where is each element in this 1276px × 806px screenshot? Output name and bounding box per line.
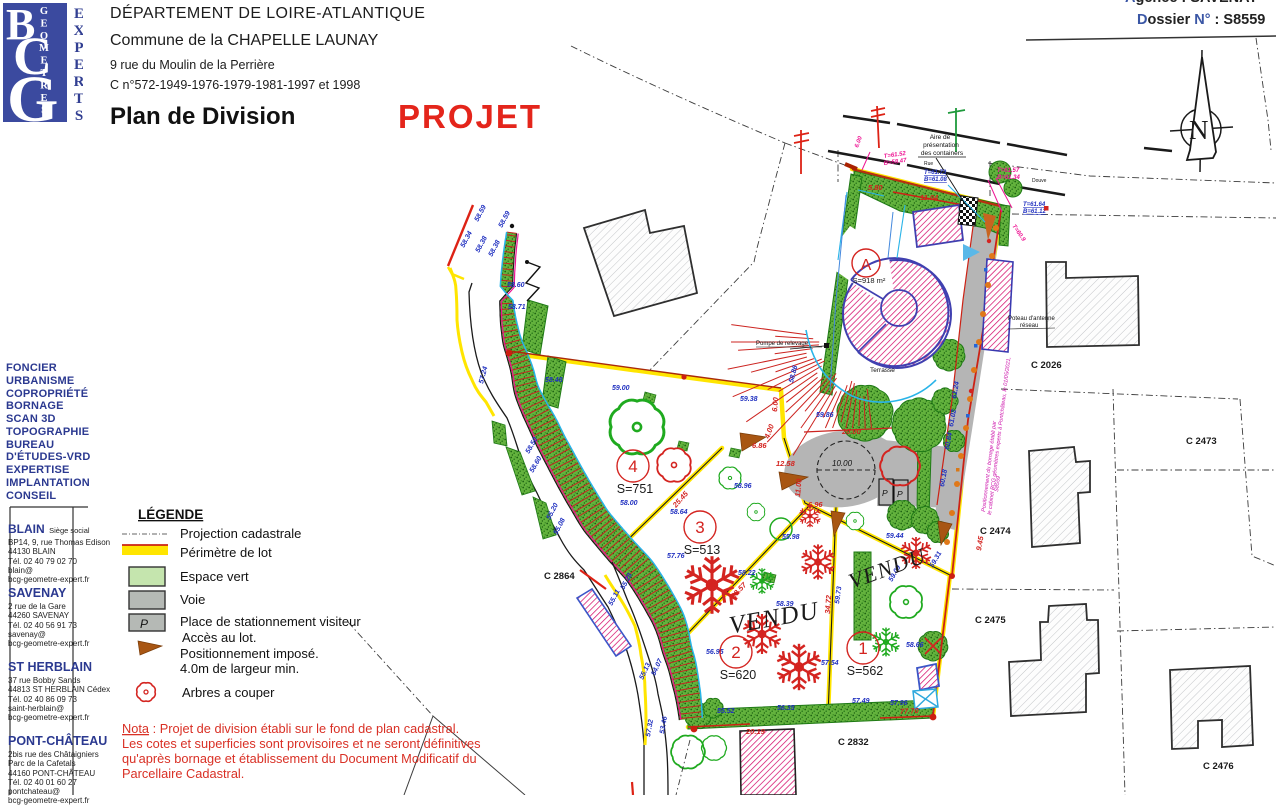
svg-text:58.22: 58.22 xyxy=(738,570,756,577)
svg-text:C 2026: C 2026 xyxy=(1031,360,1062,371)
svg-text:10.00: 10.00 xyxy=(832,459,853,468)
svg-text:A: A xyxy=(861,257,872,274)
svg-text:5.80: 5.80 xyxy=(868,183,883,192)
svg-text:Espace vert: Espace vert xyxy=(180,569,249,584)
svg-text:4.0m de largeur min.: 4.0m de largeur min. xyxy=(180,661,299,676)
svg-text:Poteau d'antenne: Poteau d'antenne xyxy=(1008,316,1056,322)
svg-text:P: P xyxy=(140,617,148,631)
svg-text:Les cotes et superficies sont: Les cotes et superficies sont provisoire… xyxy=(122,736,481,751)
svg-text:réseau: réseau xyxy=(1020,323,1038,329)
svg-text:qu'après bornage et établissem: qu'après bornage et établissement du Doc… xyxy=(122,751,477,766)
svg-text:T=61.64: T=61.64 xyxy=(1023,202,1046,208)
svg-text:présentation: présentation xyxy=(923,142,959,149)
svg-text:58.66: 58.66 xyxy=(906,642,924,649)
svg-text:56.35: 56.35 xyxy=(777,705,795,712)
svg-text:6.00: 6.00 xyxy=(770,396,780,412)
svg-text:S: S xyxy=(41,105,47,116)
svg-text:58.00: 58.00 xyxy=(620,500,638,507)
svg-text:34.72: 34.72 xyxy=(823,594,833,614)
svg-text:Terrasse: Terrasse xyxy=(870,367,895,374)
svg-text:Arbres a couper: Arbres a couper xyxy=(182,685,275,700)
svg-text:4: 4 xyxy=(628,457,637,476)
svg-text:Place de stationnement visiteu: Place de stationnement visiteur xyxy=(180,614,361,629)
svg-text:P: P xyxy=(897,489,903,499)
svg-text:Positionnement imposé.: Positionnement imposé. xyxy=(180,646,319,661)
svg-text:G: G xyxy=(7,63,58,123)
svg-text:77.70: 77.70 xyxy=(900,706,920,716)
svg-text:11.00: 11.00 xyxy=(793,477,804,497)
svg-text:B=61.12: B=61.12 xyxy=(1023,209,1047,215)
svg-text:E: E xyxy=(40,93,47,104)
svg-text:S=513: S=513 xyxy=(684,543,721,557)
svg-text:20.00: 20.00 xyxy=(841,427,862,436)
svg-text:55.52: 55.52 xyxy=(717,708,735,715)
svg-text:58.48: 58.48 xyxy=(545,377,563,384)
svg-text:Périmètre de lot: Périmètre de lot xyxy=(180,545,272,560)
svg-text:T=61.57: T=61.57 xyxy=(997,168,1020,174)
svg-text:C 2832: C 2832 xyxy=(838,737,869,748)
svg-text:T=61.73: T=61.73 xyxy=(924,170,947,176)
svg-text:6.86: 6.86 xyxy=(752,441,767,450)
svg-text:B=61.34: B=61.34 xyxy=(997,175,1021,181)
svg-text:B=61.08: B=61.08 xyxy=(924,177,948,183)
svg-text:Aire de: Aire de xyxy=(930,134,951,141)
svg-text:T: T xyxy=(74,91,83,107)
svg-text:S=620: S=620 xyxy=(720,668,757,682)
svg-text:R: R xyxy=(40,80,48,91)
svg-text:59.44: 59.44 xyxy=(886,533,904,540)
svg-text:20.19: 20.19 xyxy=(745,727,766,736)
svg-text:58.64: 58.64 xyxy=(670,509,688,516)
svg-text:LÉGENDE: LÉGENDE xyxy=(138,507,203,522)
svg-text:N: N xyxy=(1189,115,1209,145)
svg-text:58.71: 58.71 xyxy=(508,304,526,311)
svg-text:59.86: 59.86 xyxy=(816,412,834,419)
svg-text:1: 1 xyxy=(858,639,867,658)
svg-text:Rue: Rue xyxy=(924,161,933,167)
svg-text:C 2476: C 2476 xyxy=(1203,761,1234,772)
svg-text:55.98: 55.98 xyxy=(782,534,800,541)
svg-text:57.54: 57.54 xyxy=(821,660,839,667)
svg-text:C 2473: C 2473 xyxy=(1186,436,1217,447)
svg-text:S=751: S=751 xyxy=(617,482,654,496)
svg-text:Accès au lot.: Accès au lot. xyxy=(182,630,256,645)
svg-text:P: P xyxy=(882,488,888,498)
svg-text:S: S xyxy=(75,108,83,123)
svg-text:59.38: 59.38 xyxy=(740,396,758,403)
svg-text:57.49: 57.49 xyxy=(852,698,870,705)
svg-text:R: R xyxy=(74,74,83,90)
svg-text:58.60: 58.60 xyxy=(507,282,525,289)
svg-text:Voie: Voie xyxy=(180,592,205,607)
svg-text:T: T xyxy=(40,68,47,79)
svg-text:Projection cadastrale: Projection cadastrale xyxy=(180,526,301,541)
svg-text:S=562: S=562 xyxy=(847,664,884,678)
svg-text:58.96: 58.96 xyxy=(734,483,752,490)
svg-text:57.76: 57.76 xyxy=(667,553,685,560)
svg-text:C 2475: C 2475 xyxy=(975,615,1006,626)
svg-text:2: 2 xyxy=(731,643,740,662)
svg-text:12.58: 12.58 xyxy=(776,459,796,468)
svg-text:S=918 m²: S=918 m² xyxy=(853,276,886,285)
svg-text:C 2864: C 2864 xyxy=(544,571,575,582)
svg-text:Douve: Douve xyxy=(1032,178,1047,184)
svg-text:59.00: 59.00 xyxy=(612,385,630,392)
svg-text:11.04: 11.04 xyxy=(920,193,939,202)
svg-text:C 2474: C 2474 xyxy=(980,526,1011,537)
svg-text:Nota : Projet de division étab: Nota : Projet de division établi sur le … xyxy=(122,721,459,736)
svg-text:Pompe de relevage: Pompe de relevage xyxy=(756,341,809,347)
svg-text:Parcellaire Cadastral.: Parcellaire Cadastral. xyxy=(122,766,244,781)
svg-text:3: 3 xyxy=(695,518,704,537)
svg-text:des containers: des containers xyxy=(921,150,964,157)
svg-text:6.96: 6.96 xyxy=(808,500,823,509)
